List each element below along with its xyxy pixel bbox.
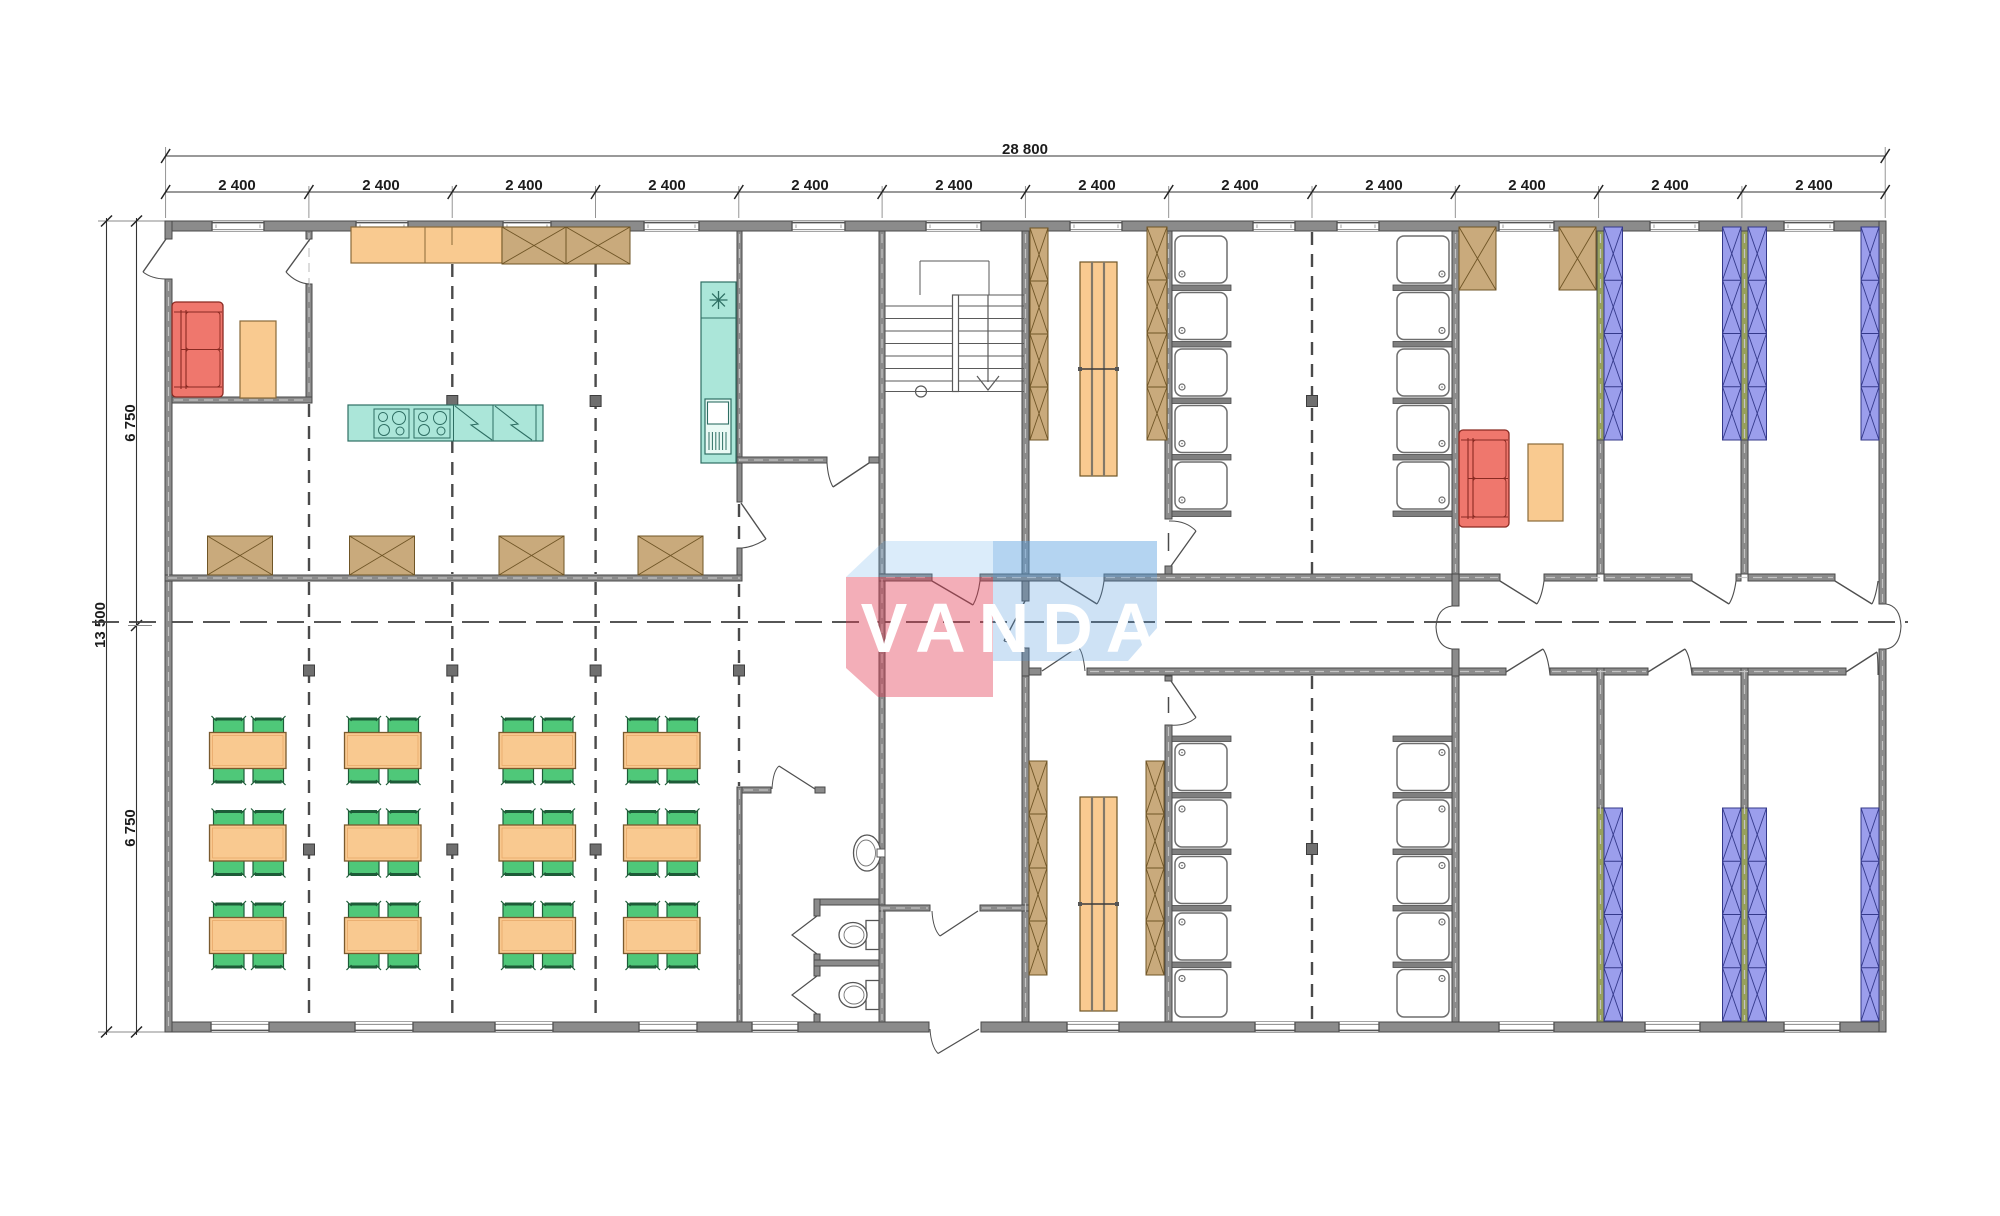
svg-text:2 400: 2 400	[1078, 177, 1116, 194]
svg-text:6 750: 6 750	[122, 404, 139, 442]
svg-text:2 400: 2 400	[791, 177, 829, 194]
svg-text:2 400: 2 400	[1508, 177, 1546, 194]
svg-text:2 400: 2 400	[362, 177, 400, 194]
svg-text:13 500: 13 500	[92, 602, 109, 648]
svg-text:2 400: 2 400	[1365, 177, 1403, 194]
svg-text:VANDA: VANDA	[861, 589, 1170, 667]
svg-text:2 400: 2 400	[505, 177, 543, 194]
svg-text:2 400: 2 400	[1221, 177, 1259, 194]
svg-text:2 400: 2 400	[218, 177, 256, 194]
svg-text:2 400: 2 400	[935, 177, 973, 194]
svg-text:2 400: 2 400	[648, 177, 686, 194]
svg-text:28 800: 28 800	[1002, 141, 1048, 158]
svg-text:2 400: 2 400	[1795, 177, 1833, 194]
svg-text:2 400: 2 400	[1651, 177, 1689, 194]
svg-text:6 750: 6 750	[122, 809, 139, 847]
